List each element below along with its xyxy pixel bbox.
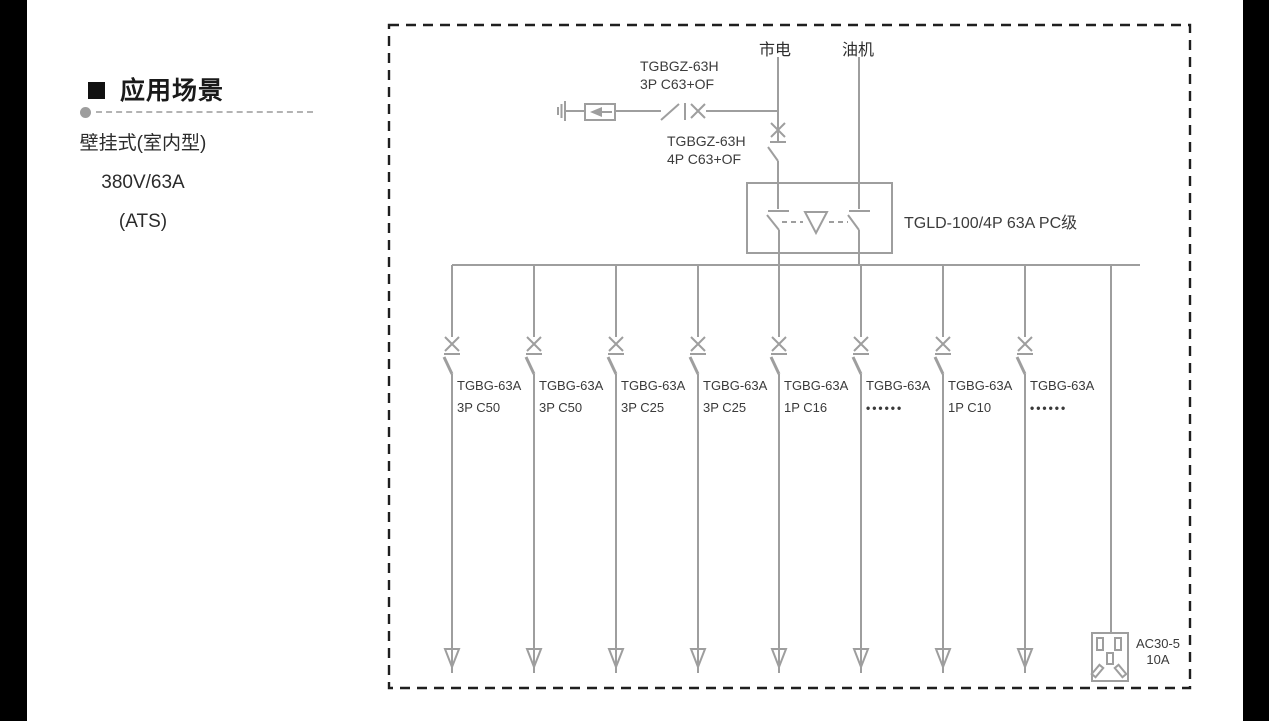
ats-triangle-icon <box>805 212 827 233</box>
switch-blade-icon <box>608 357 616 374</box>
spd-branch <box>558 101 778 121</box>
branch-label-4: TGBG-63A 3P C25 <box>703 379 783 415</box>
breaker-x-icon <box>691 337 705 351</box>
switch-blade-icon <box>848 215 859 230</box>
generator-source-label: 油机 <box>842 36 874 60</box>
branch-label-8: TGBG-63A •••••• <box>1030 379 1110 415</box>
socket-feeder <box>1092 265 1128 681</box>
diagram-border <box>389 25 1190 688</box>
socket-icon <box>1092 633 1128 681</box>
ats-switch-label: TGLD-100/4P 63A PC级 <box>904 209 1077 233</box>
breaker-x-icon <box>609 337 623 351</box>
breaker-x-icon <box>445 337 459 351</box>
spd-box-icon <box>585 104 615 120</box>
branch-feeder-8 <box>1017 265 1033 673</box>
switch-blade-icon <box>935 357 943 374</box>
branch-label-2: TGBG-63A 3P C50 <box>539 379 619 415</box>
page: 应用场景 壁挂式(室内型) 380V/63A (ATS) <box>0 0 1269 721</box>
branch-label-3: TGBG-63A 3P C25 <box>621 379 701 415</box>
branch-feeder-4 <box>690 265 706 673</box>
switch-blade-icon <box>768 147 778 161</box>
branch-feeder-5 <box>771 265 787 673</box>
switch-blade-icon <box>526 357 534 374</box>
breaker-x-icon <box>1018 337 1032 351</box>
switch-blade-icon <box>661 104 679 120</box>
switch-blade-icon <box>771 357 779 374</box>
ground-icon <box>558 101 565 121</box>
branch-label-5: TGBG-63A 1P C16 <box>784 379 864 415</box>
switch-blade-icon <box>690 357 698 374</box>
switch-blade-icon <box>1017 357 1025 374</box>
branch-feeder-3 <box>608 265 624 673</box>
main-breaker-label: TGBGZ-63H 4P C63+OF <box>667 132 746 168</box>
socket-label: AC30-5 10A <box>1132 636 1184 668</box>
branch-feeder-7 <box>935 265 951 673</box>
branch-feeder-6 <box>853 265 869 673</box>
spd-breaker-label: TGBGZ-63H 3P C63+OF <box>640 57 719 93</box>
branch-label-6: TGBG-63A •••••• <box>866 379 946 415</box>
branch-feeder-2 <box>526 265 542 673</box>
breaker-x-icon <box>527 337 541 351</box>
switch-blade-icon <box>767 215 779 230</box>
switch-blade-icon <box>444 357 452 374</box>
breaker-x-icon <box>772 337 786 351</box>
mains-feed-line <box>768 57 786 209</box>
switch-blade-icon <box>853 357 861 374</box>
breaker-x-icon <box>936 337 950 351</box>
branch-feeder-1 <box>444 265 460 673</box>
breaker-x-icon <box>854 337 868 351</box>
single-line-diagram <box>0 0 1269 721</box>
breaker-x-icon <box>691 104 705 118</box>
ats-switch-icon <box>747 183 892 265</box>
mains-source-label: 市电 <box>759 36 791 60</box>
branch-label-7: TGBG-63A 1P C10 <box>948 379 1028 415</box>
branch-label-1: TGBG-63A 3P C50 <box>457 379 537 415</box>
